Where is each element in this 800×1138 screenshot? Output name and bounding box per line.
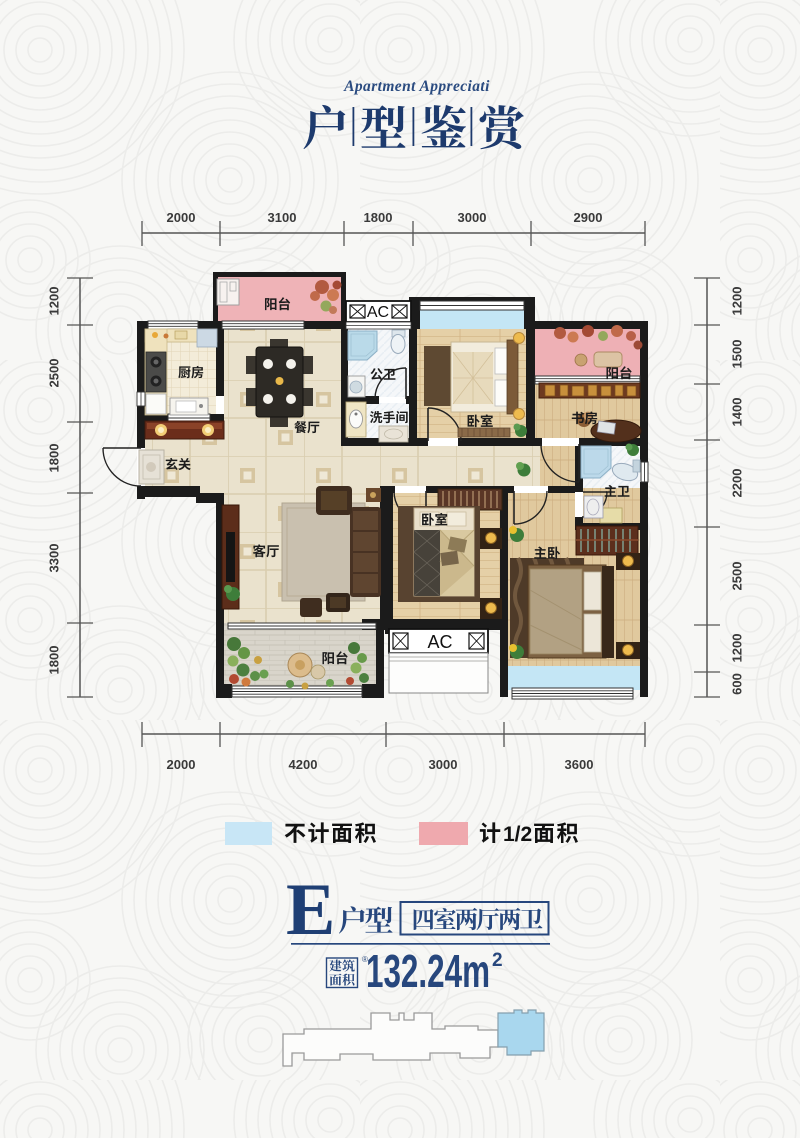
svg-text:2000: 2000: [167, 210, 196, 225]
svg-text:AC: AC: [427, 632, 452, 652]
svg-text:1800: 1800: [364, 210, 393, 225]
svg-text:1800: 1800: [46, 444, 61, 473]
svg-text:AC: AC: [367, 304, 389, 321]
svg-text:1200: 1200: [729, 287, 744, 316]
svg-text:3000: 3000: [458, 210, 487, 225]
svg-text:3600: 3600: [565, 757, 594, 772]
svg-text:2500: 2500: [729, 562, 744, 591]
svg-text:E: E: [286, 869, 335, 951]
svg-text:2: 2: [492, 950, 503, 971]
svg-text:1800: 1800: [46, 646, 61, 675]
svg-text:1/2: 1/2: [503, 823, 532, 846]
svg-text:2500: 2500: [46, 359, 61, 388]
svg-text:600: 600: [729, 673, 744, 695]
svg-text:1200: 1200: [729, 634, 744, 663]
svg-text:2900: 2900: [574, 210, 603, 225]
svg-text:2200: 2200: [729, 469, 744, 498]
svg-text:3300: 3300: [46, 544, 61, 573]
svg-text:3100: 3100: [268, 210, 297, 225]
svg-text:4200: 4200: [289, 757, 318, 772]
svg-text:Apartment Appreciati: Apartment Appreciati: [343, 78, 490, 95]
svg-text:1500: 1500: [729, 340, 744, 369]
svg-text:132.24m: 132.24m: [366, 945, 490, 997]
svg-text:3000: 3000: [429, 757, 458, 772]
svg-text:1200: 1200: [46, 287, 61, 316]
svg-text:1400: 1400: [729, 398, 744, 427]
svg-text:2000: 2000: [167, 757, 196, 772]
